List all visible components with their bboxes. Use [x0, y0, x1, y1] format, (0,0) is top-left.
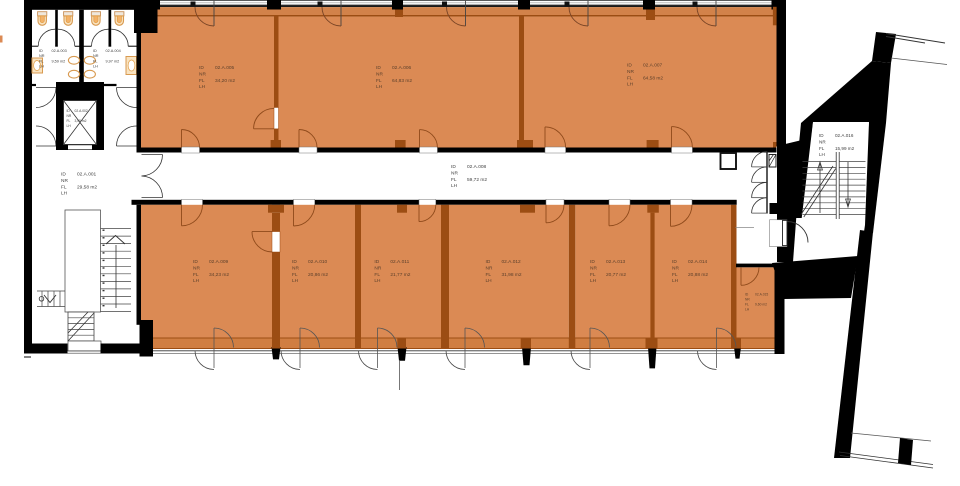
svg-text:FL: FL — [451, 177, 457, 183]
svg-text:FL: FL — [199, 78, 205, 84]
svg-text:LH: LH — [672, 278, 679, 284]
svg-text:34,23 m2: 34,23 m2 — [209, 272, 229, 278]
svg-text:02.A.003: 02.A.003 — [52, 49, 67, 53]
svg-text:02.A.009: 02.A.009 — [209, 259, 229, 265]
svg-text:20,77 m2: 20,77 m2 — [606, 272, 626, 278]
svg-text:LH: LH — [376, 84, 383, 90]
svg-text:02.A.015: 02.A.015 — [755, 293, 768, 297]
svg-text:NR: NR — [67, 114, 72, 118]
svg-text:NR: NR — [486, 265, 493, 271]
svg-text:NR: NR — [93, 54, 99, 58]
svg-text:ID: ID — [590, 259, 595, 265]
svg-text:NR: NR — [590, 265, 597, 271]
svg-text:ID: ID — [819, 133, 824, 138]
svg-text:NR: NR — [61, 178, 68, 184]
svg-text:02.A.016: 02.A.016 — [835, 133, 854, 138]
svg-text:NR: NR — [451, 170, 458, 176]
svg-text:NR: NR — [374, 265, 381, 271]
svg-text:29,58 m2: 29,58 m2 — [77, 184, 97, 190]
svg-text:NR: NR — [819, 139, 826, 144]
svg-text:LH: LH — [627, 82, 634, 88]
svg-text:FL: FL — [376, 78, 382, 84]
svg-text:ID: ID — [627, 63, 632, 69]
svg-text:ID: ID — [374, 259, 379, 265]
svg-text:02.A.011: 02.A.011 — [390, 259, 409, 265]
svg-text:02.A.005: 02.A.005 — [215, 65, 235, 71]
svg-text:02.A.001: 02.A.001 — [77, 172, 97, 178]
svg-text:02.A.002: 02.A.002 — [75, 109, 88, 113]
svg-text:9,97 m2: 9,97 m2 — [106, 59, 120, 63]
svg-text:ID: ID — [199, 65, 204, 71]
svg-text:NR: NR — [745, 298, 750, 302]
svg-text:LH: LH — [67, 124, 72, 128]
svg-text:ID: ID — [486, 259, 491, 265]
svg-text:9,60 m2: 9,60 m2 — [755, 303, 767, 307]
svg-text:20,88 m2: 20,88 m2 — [688, 272, 708, 278]
svg-text:FL: FL — [672, 272, 678, 278]
svg-text:31,98 m2: 31,98 m2 — [502, 272, 522, 278]
svg-text:LH: LH — [93, 65, 98, 69]
svg-text:3,05 m2: 3,05 m2 — [75, 119, 87, 123]
svg-text:LH: LH — [745, 308, 750, 312]
svg-text:ID: ID — [61, 172, 66, 178]
svg-text:NR: NR — [193, 265, 200, 271]
svg-text:LH: LH — [486, 278, 493, 284]
svg-text:ID: ID — [93, 49, 97, 53]
svg-text:64,83 m2: 64,83 m2 — [392, 78, 412, 84]
svg-text:02.A.004: 02.A.004 — [106, 49, 121, 53]
svg-text:NR: NR — [376, 71, 383, 77]
svg-text:FL: FL — [93, 59, 97, 63]
svg-text:LH: LH — [819, 152, 825, 157]
svg-text:LH: LH — [193, 278, 200, 284]
svg-text:20,86 m2: 20,86 m2 — [308, 272, 328, 278]
svg-text:FL: FL — [486, 272, 492, 278]
svg-text:59,72 m2: 59,72 m2 — [467, 177, 487, 183]
svg-text:FL: FL — [292, 272, 298, 278]
svg-text:02.A.008: 02.A.008 — [467, 164, 487, 170]
svg-text:FL: FL — [627, 75, 633, 81]
svg-text:02.A.012: 02.A.012 — [502, 259, 522, 265]
svg-text:LH: LH — [590, 278, 597, 284]
svg-text:FL: FL — [819, 146, 825, 151]
svg-text:ID: ID — [292, 259, 297, 265]
svg-text:LH: LH — [292, 278, 299, 284]
svg-text:02.A.014: 02.A.014 — [688, 259, 708, 265]
svg-text:FL: FL — [374, 272, 380, 278]
svg-text:LH: LH — [451, 183, 458, 189]
svg-text:64,58 m2: 64,58 m2 — [643, 75, 663, 81]
svg-text:LH: LH — [39, 65, 44, 69]
svg-text:ID: ID — [451, 164, 456, 170]
svg-text:FL: FL — [590, 272, 596, 278]
svg-text:NR: NR — [292, 265, 299, 271]
svg-text:34,20 m2: 34,20 m2 — [215, 78, 235, 84]
svg-text:ID: ID — [376, 65, 381, 71]
svg-text:NR: NR — [39, 54, 45, 58]
svg-text:ID: ID — [672, 259, 677, 265]
svg-text:02.A.006: 02.A.006 — [392, 65, 412, 71]
svg-text:02.A.013: 02.A.013 — [606, 259, 626, 265]
svg-text:FL: FL — [193, 272, 199, 278]
svg-text:FL: FL — [61, 184, 67, 190]
svg-text:LH: LH — [61, 191, 68, 197]
svg-text:NR: NR — [672, 265, 679, 271]
svg-text:15,99 m2: 15,99 m2 — [835, 146, 855, 151]
svg-text:LH: LH — [374, 278, 381, 284]
svg-text:ID: ID — [193, 259, 198, 265]
svg-text:FL: FL — [745, 303, 749, 307]
svg-text:NR: NR — [199, 71, 206, 77]
svg-text:02.A.010: 02.A.010 — [308, 259, 328, 265]
svg-text:02.A.007: 02.A.007 — [643, 63, 663, 69]
svg-text:FL: FL — [39, 59, 43, 63]
svg-text:LH: LH — [199, 84, 206, 90]
svg-text:NR: NR — [627, 69, 634, 75]
svg-text:FL: FL — [67, 119, 71, 123]
svg-text:21,77 m2: 21,77 m2 — [390, 272, 410, 278]
svg-text:9,59 m2: 9,59 m2 — [52, 59, 66, 63]
svg-text:ID: ID — [39, 49, 43, 53]
